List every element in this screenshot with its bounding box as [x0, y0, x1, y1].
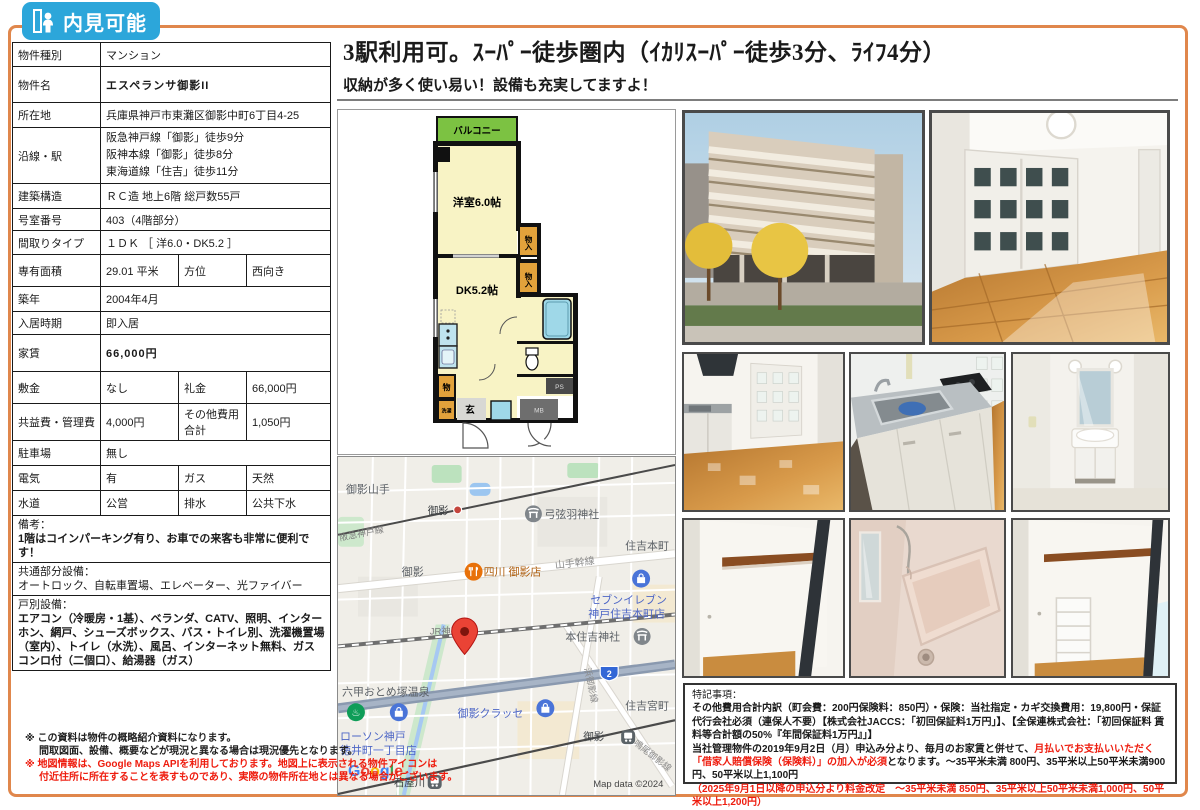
notes-heading: 特記事項：: [692, 689, 1168, 702]
dk-label: DK5.2帖: [456, 283, 498, 297]
lines-value: 阪急神戸線「御影」徒歩9分 阪神本線「御影」徒歩8分 東海道線「住吉」徒歩11分: [101, 128, 331, 184]
floorplan-panel: バルコニー 洋室6.0帖: [337, 109, 676, 455]
notes-fee-breakdown: その他費用合計内訳（町会費：200円保険料：850円）・保険：当社指定・カギ交換…: [692, 702, 1168, 742]
map-label-mikage-area: 御影: [402, 565, 424, 579]
badge-label: 内見可能: [63, 7, 147, 36]
name-label: 物件名: [13, 67, 101, 103]
catch-copy: 3駅利用可。ｽｰﾊﾟｰ徒歩圏内（ｲｶﾘｽｰﾊﾟｰ徒歩3分、ﾗｲﾌ4分） 収納が多…: [343, 33, 1188, 95]
common-label: 共通部分設備：: [18, 566, 95, 578]
deposit-label: 敷金: [13, 372, 101, 404]
electric-value: 有: [101, 466, 179, 491]
electric-label: 電気: [13, 466, 101, 491]
fee-value: 4,000円: [101, 404, 179, 441]
moto-sumiyoshi-shrine-icon: [634, 628, 651, 645]
mikage-hanshin-station-icon: [621, 730, 635, 744]
unit-label: 戸別設備：: [18, 599, 73, 611]
remarks-cell: 備考：1階はコインパーキング有り、お車での来客も非常に便利です！: [13, 516, 331, 563]
notes-insurance: 当社管理物件の2019年9月2日（月）申込み分より、毎月のお家賃と併せて、月払い…: [692, 743, 1168, 783]
area-value: 29.01 平米: [101, 255, 179, 287]
restaurant-icon: [465, 563, 483, 581]
direction-label: 方位: [179, 255, 247, 287]
map-label-sumiyoshi-honmachi: 住吉本町: [625, 539, 669, 553]
floorplan-drawing: バルコニー 洋室6.0帖: [338, 110, 675, 454]
line-3: 東海道線「住吉」徒歩11分: [106, 164, 325, 181]
property-spec-table: 物件種別マンション 物件名エスペランサ御影II 所在地兵庫県神戸市東灘区御影中町…: [12, 42, 331, 671]
parking-label: 駐車場: [13, 441, 101, 466]
remarks-value: 1階はコインパーキング有り、お車での来客も非常に便利です！: [18, 533, 309, 559]
photo-washroom-vanity: [1011, 352, 1170, 512]
entrance-door-arc: [463, 423, 488, 448]
lawson-icon: [390, 703, 408, 721]
photo-western-room: [929, 110, 1170, 345]
otherfee-label: その他費用合計: [179, 404, 247, 441]
seven-eleven-icon: [632, 570, 650, 588]
storage-label: 物: [443, 382, 451, 392]
closet-2-label: 物入: [524, 271, 533, 288]
notes-price-revision: （2025年9月1日以降の申込分より料金改定 ～35平米未満 850円、35平米…: [692, 783, 1168, 810]
keymoney-label: 礼金: [179, 372, 247, 404]
map-label-seven-1: セブンイレブン: [590, 593, 667, 607]
map-label-mikage-hanshin: 御影: [583, 730, 604, 743]
closet-1-label: 物入: [524, 234, 533, 251]
yuzuruha-shrine-icon: [525, 505, 542, 522]
toilet: [526, 354, 538, 370]
unit-equip-cell: 戸別設備：エアコン（冷暖房・1基）、ベランダ、CATV、照明、インターホン、網戸…: [13, 596, 331, 671]
room-value: 403（4階部分）: [101, 209, 331, 231]
map-label-sumiyoshi-miyamachi: 住吉宮町: [625, 698, 669, 712]
room-label: 号室番号: [13, 209, 101, 231]
ps-label: PS: [555, 384, 564, 391]
rent-value: 66,000円: [101, 335, 331, 372]
unit-value: エアコン（冷暖房・1基）、ベランダ、CATV、照明、インターホン、網戸、シューズ…: [18, 613, 324, 667]
rent-label: 家賃: [13, 335, 101, 372]
map-label-mikage-yamate: 御影山手: [346, 482, 390, 496]
drain-value: 公共下水: [247, 491, 331, 516]
fee-label: 共益費・管理費: [13, 404, 101, 441]
map-label-mikage-classe: 御影クラッセ: [458, 706, 524, 720]
door-person-icon: [32, 8, 56, 34]
built-value: 2004年4月: [101, 287, 331, 312]
route-2-shield: 2: [600, 666, 618, 680]
area-label: 専有面積: [13, 255, 101, 287]
notes-insurance-lead: 当社管理物件の2019年9月2日（月）申込み分より、毎月のお家賃と併せて、: [692, 744, 1034, 755]
photo-closet-shelf: [682, 518, 845, 678]
property-name: エスペランサ御影II: [101, 67, 331, 103]
mb-label: MB: [534, 408, 544, 415]
disclaimer-line3: ※ 地図情報は、Google Maps APIを利用しております。地図上に表示さ…: [25, 758, 458, 771]
photo-kitchen-sink: [849, 352, 1006, 512]
address-label: 所在地: [13, 103, 101, 128]
map-label-seven-2: 神戸住吉本町店: [588, 607, 665, 621]
laundry-label: 洗濯: [441, 408, 451, 415]
movein-value: 即入居: [101, 312, 331, 335]
photo-building-exterior: [682, 110, 925, 345]
common-equip-cell: 共通部分設備：オートロック、自転車置場、エレベーター、光ファイバー: [13, 563, 331, 596]
map-label-moto-sumiyoshi: 本住吉神社: [565, 629, 620, 643]
line-2: 阪神本線「御影」徒歩8分: [106, 147, 325, 164]
stove: [439, 324, 457, 346]
common-value: オートロック、自転車置場、エレベーター、光ファイバー: [18, 580, 303, 592]
keymoney-value: 66,000円: [247, 372, 331, 404]
shoe-box: [491, 401, 511, 420]
map-label-yuzuruha: 弓弦羽神社: [544, 507, 599, 521]
direction-value: 西向き: [247, 255, 331, 287]
photo-kitchen-room: [682, 352, 845, 512]
water-label: 水道: [13, 491, 101, 516]
disclaimer: ※ この資料は物件の概略紹介資料になります。 間取図面、設備、概要などが現況と異…: [25, 732, 458, 784]
disclaimer-line2: 間取図面、設備、概要などが現況と異なる場合は現況優先となります。: [25, 745, 458, 758]
structure-label: 建築構造: [13, 184, 101, 209]
movein-label: 入居時期: [13, 312, 101, 335]
layout-label: 間取りタイプ: [13, 231, 101, 255]
built-label: 築年: [13, 287, 101, 312]
catch-title: 3駅利用可。ｽｰﾊﾟｰ徒歩圏内（ｲｶﾘｽｰﾊﾟｰ徒歩3分、ﾗｲﾌ4分）: [343, 33, 1188, 67]
parking-value: 無し: [101, 441, 331, 466]
type-value: マンション: [101, 43, 331, 67]
water-value: 公営: [101, 491, 179, 516]
gas-label: ガス: [179, 466, 247, 491]
deposit-value: なし: [101, 372, 179, 404]
viewing-available-badge: 内見可能: [22, 2, 160, 40]
disclaimer-line4: 付近住所に所在することを表すものであり、実際の物件所在地とは異なる場合がございま…: [25, 771, 458, 784]
photo-closet-shelving: [1011, 518, 1170, 678]
route-number: 2: [607, 669, 612, 679]
line-1: 阪急神戸線「御影」徒歩9分: [106, 130, 325, 147]
special-notes-box: 特記事項： その他費用合計内訳（町会費：200円保険料：850円）・保険：当社指…: [683, 683, 1177, 784]
onsen-icon: [347, 703, 365, 721]
mikage-classe-icon: [536, 699, 554, 717]
map-attribution: Map data ©2024: [593, 779, 663, 790]
drain-label: 排水: [179, 491, 247, 516]
map-label-shisen: 四川 御影店: [484, 565, 542, 579]
map-label-mikage-hankyu: 御影: [428, 504, 449, 517]
bathtub: [543, 299, 571, 339]
type-label: 物件種別: [13, 43, 101, 67]
header-divider: [337, 99, 1178, 101]
hankyu-mikage-station-icon: [454, 506, 462, 514]
address-value: 兵庫県神戸市東灘区御影中町6丁目4-25: [101, 103, 331, 128]
entrance-label: 玄: [465, 404, 475, 416]
western-room-label: 洋室6.0帖: [453, 195, 501, 209]
map-label-rokko-onsen: 六甲おとめ塚温泉: [342, 684, 430, 698]
gas-value: 天然: [247, 466, 331, 491]
catch-subtitle: 収納が多く使い易い！設備も充実してますよ！: [343, 74, 1188, 95]
remarks-label: 備考：: [18, 519, 51, 531]
structure-value: ＲＣ造 地上6階 総戸数55戸: [101, 184, 331, 209]
disclaimer-line1: ※ この資料は物件の概略紹介資料になります。: [25, 732, 458, 745]
layout-value: １ＤＫ ［ 洋6.0・DK5.2 ］: [101, 231, 331, 255]
lines-label: 沿線・駅: [13, 128, 101, 184]
balcony-label: バルコニー: [453, 125, 500, 137]
photo-bathroom: [849, 518, 1006, 678]
otherfee-value: 1,050円: [247, 404, 331, 441]
